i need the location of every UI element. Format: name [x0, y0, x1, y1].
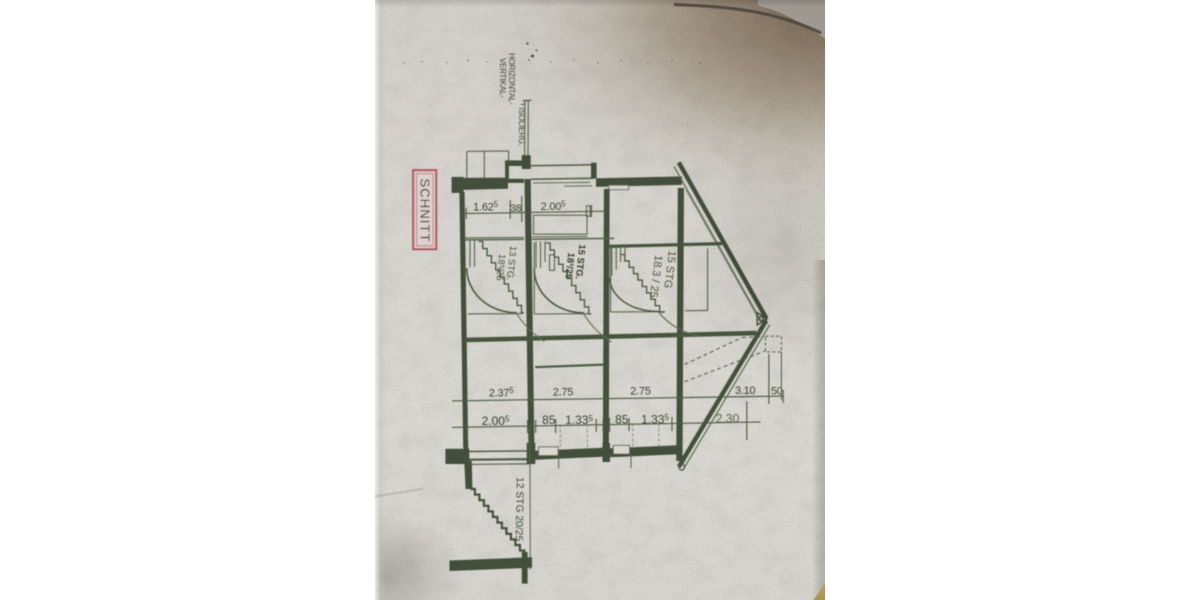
svg-text:2.30: 2.30 [716, 412, 740, 426]
svg-text:3.10: 3.10 [735, 385, 756, 397]
svg-text:85: 85 [615, 413, 629, 427]
svg-text:85: 85 [542, 413, 556, 427]
svg-text:2.75: 2.75 [630, 386, 651, 398]
svg-text:2.75: 2.75 [553, 387, 574, 399]
svg-text:12 STG 20/25: 12 STG 20/25 [513, 477, 525, 542]
